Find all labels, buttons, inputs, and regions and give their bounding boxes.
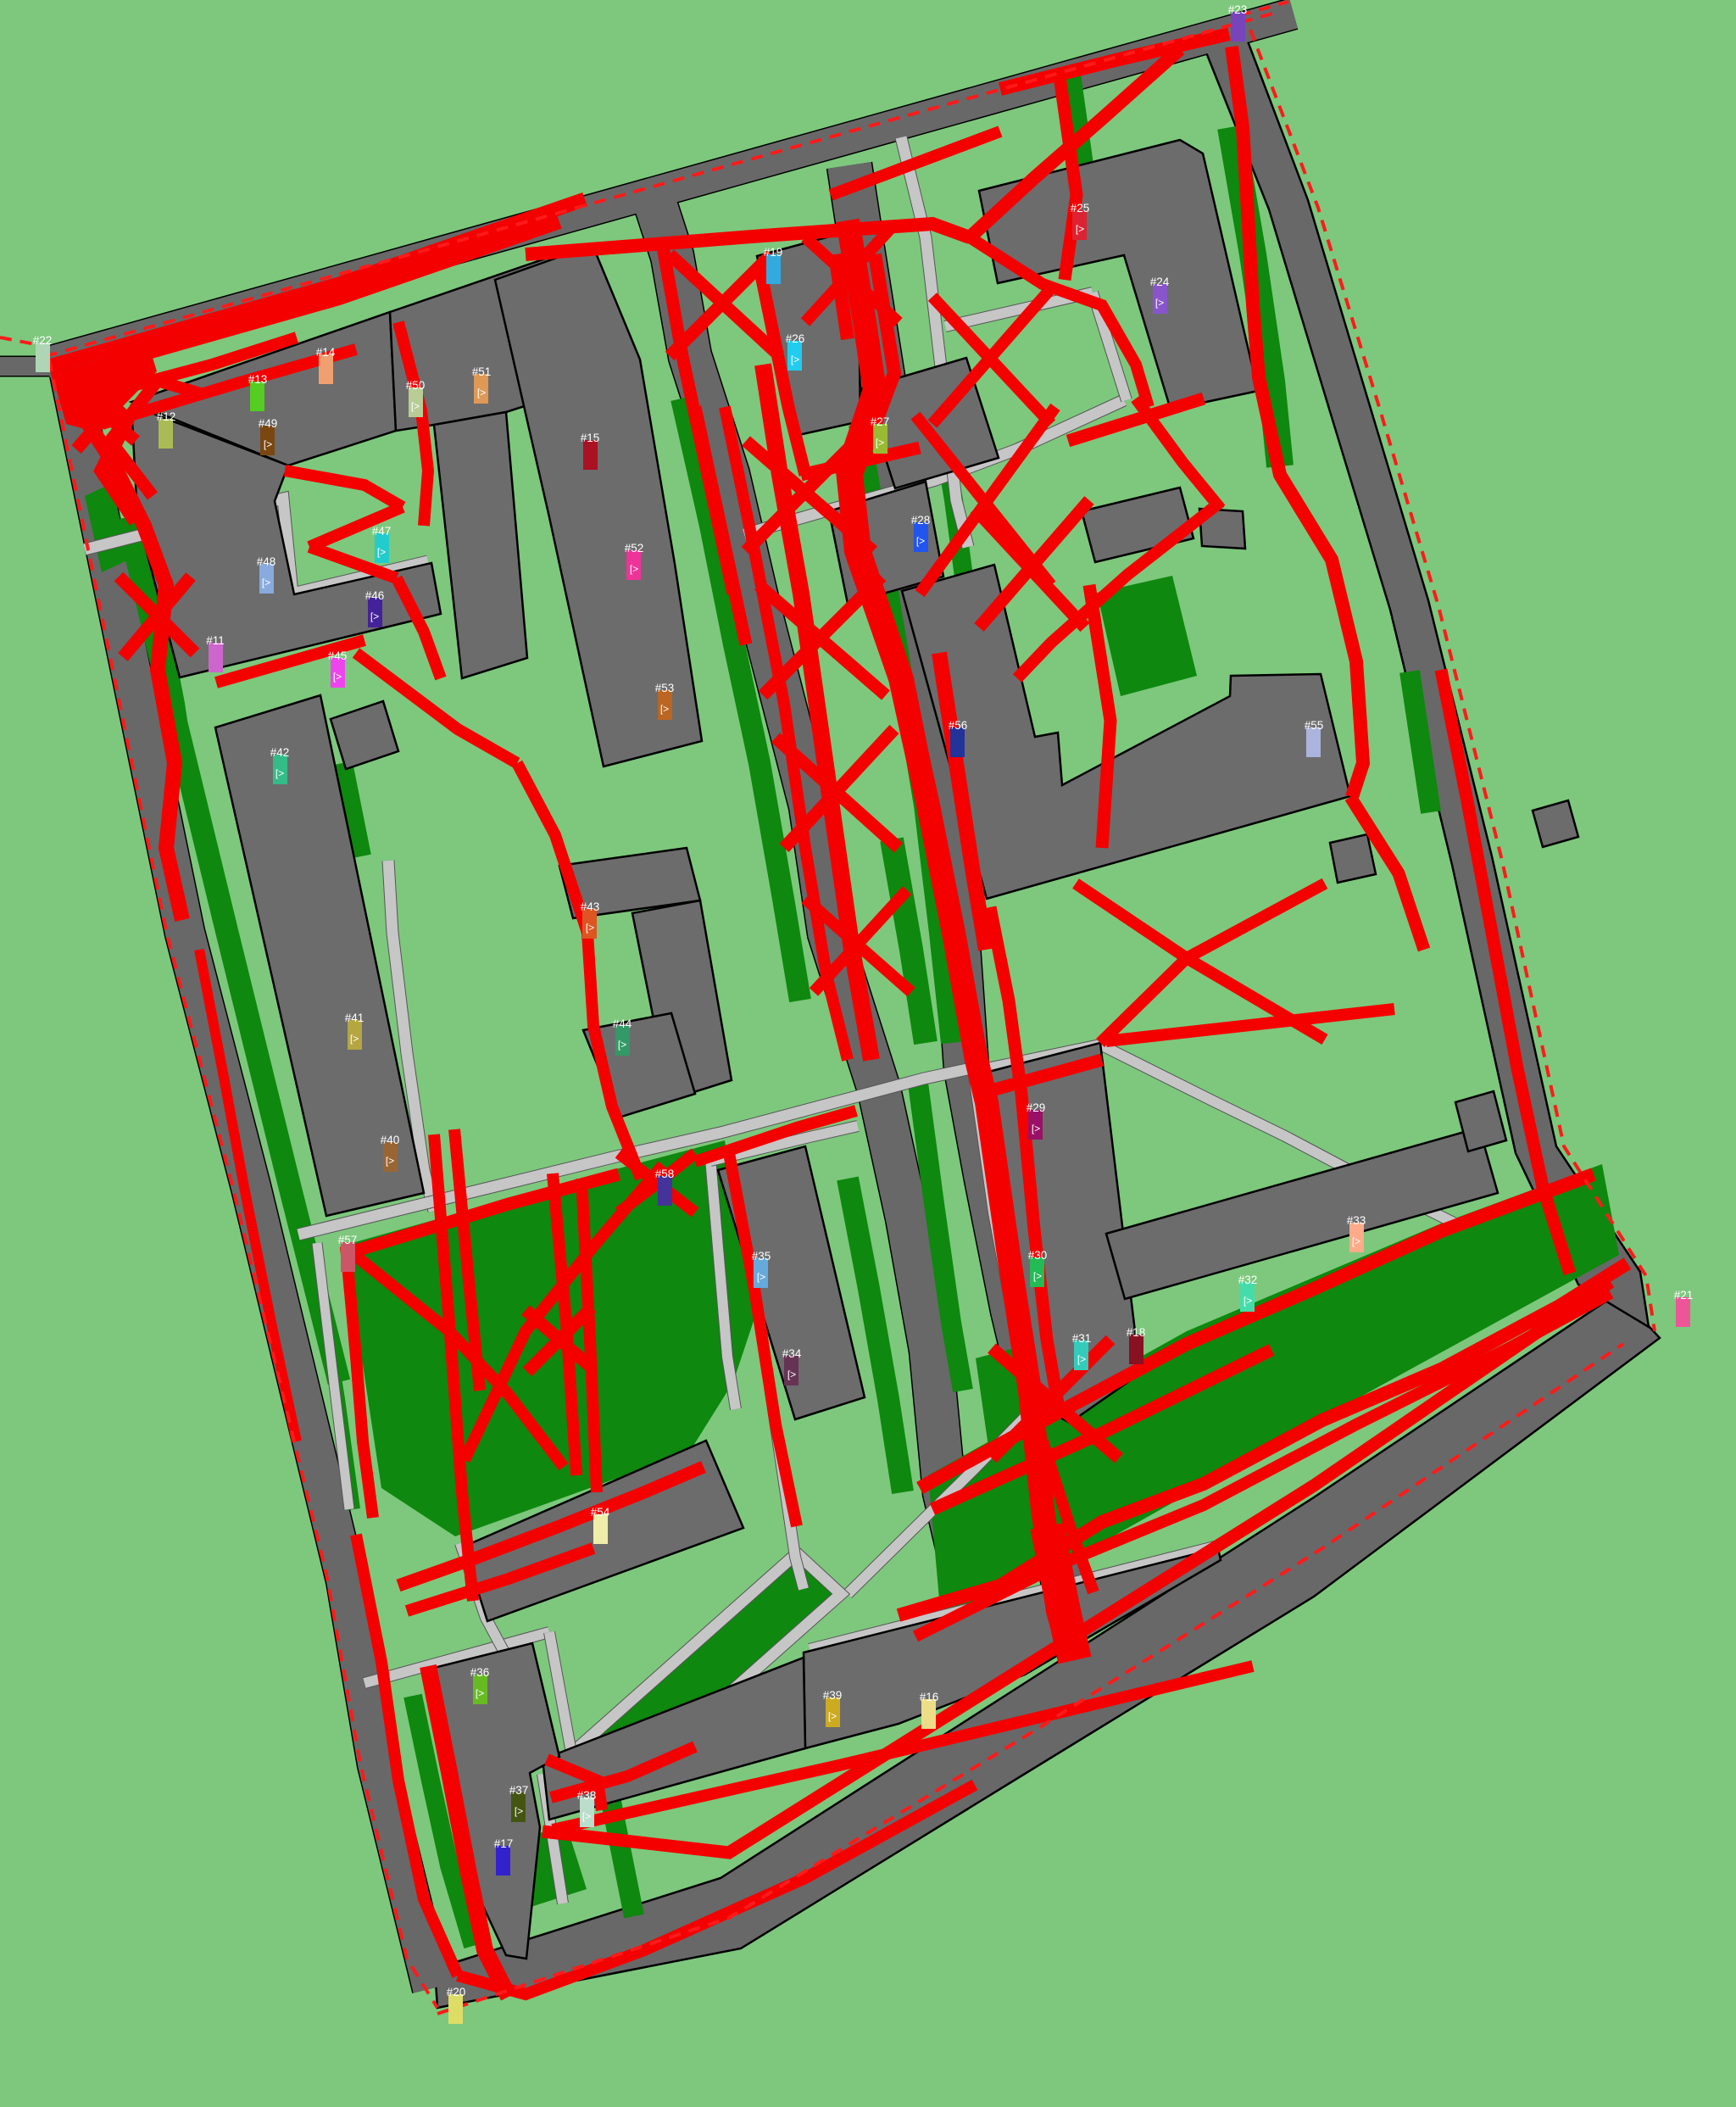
svg-text:[>: [> [477,387,486,399]
svg-text:#53: #53 [655,682,675,694]
svg-text:#11: #11 [206,634,225,647]
svg-text:#28: #28 [911,514,931,527]
svg-text:#21: #21 [1674,1289,1694,1302]
svg-text:[>: [> [630,563,638,575]
svg-text:[>: [> [333,671,342,683]
svg-text:[>: [> [350,1033,359,1045]
svg-text:#17: #17 [494,1837,514,1850]
svg-text:#20: #20 [447,1986,466,1998]
svg-text:#19: #19 [764,246,783,259]
svg-text:[>: [> [828,1710,837,1722]
svg-text:#54: #54 [591,1506,610,1519]
svg-text:#15: #15 [581,432,600,444]
svg-text:#32: #32 [1238,1274,1258,1286]
svg-text:#43: #43 [581,900,600,913]
svg-text:#46: #46 [365,589,385,602]
svg-text:#49: #49 [259,417,278,430]
svg-text:#25: #25 [1071,202,1090,215]
svg-text:#30: #30 [1028,1249,1048,1262]
svg-text:#39: #39 [823,1689,843,1702]
svg-text:[>: [> [876,437,884,449]
svg-text:#31: #31 [1072,1332,1092,1345]
svg-text:#42: #42 [270,746,290,759]
svg-text:#22: #22 [33,334,53,347]
svg-text:#37: #37 [509,1784,529,1797]
svg-text:#13: #13 [248,373,268,386]
svg-text:#47: #47 [372,525,392,538]
svg-text:[>: [> [264,438,272,450]
svg-text:[>: [> [787,1368,796,1380]
svg-text:#50: #50 [406,379,426,392]
svg-text:[>: [> [262,577,270,588]
svg-text:#38: #38 [577,1789,597,1802]
svg-text:[>: [> [275,767,284,779]
svg-text:[>: [> [1033,1270,1042,1282]
svg-text:#23: #23 [1228,3,1248,16]
svg-text:#33: #33 [1347,1214,1366,1227]
svg-text:[>: [> [377,546,386,558]
svg-text:[>: [> [1244,1295,1252,1307]
svg-text:#51: #51 [472,365,492,378]
svg-text:[>: [> [791,354,799,365]
svg-text:[>: [> [515,1805,523,1817]
svg-text:#48: #48 [257,555,276,568]
svg-text:#27: #27 [871,415,890,428]
svg-text:#58: #58 [655,1168,675,1180]
svg-text:#45: #45 [328,649,348,662]
svg-text:[>: [> [582,1810,591,1822]
svg-text:[>: [> [1352,1235,1360,1247]
svg-text:#16: #16 [920,1691,939,1703]
svg-text:#41: #41 [345,1012,364,1024]
svg-text:[>: [> [1155,297,1164,309]
svg-text:[>: [> [1032,1123,1040,1134]
svg-text:#36: #36 [470,1666,490,1679]
svg-text:#12: #12 [157,410,176,423]
svg-text:#55: #55 [1305,719,1324,732]
svg-text:[>: [> [586,922,594,934]
svg-text:[>: [> [1077,1353,1086,1365]
svg-text:#44: #44 [613,1017,632,1030]
svg-text:#40: #40 [381,1134,400,1146]
svg-text:#26: #26 [786,332,805,345]
svg-text:#52: #52 [625,542,644,555]
svg-text:#18: #18 [1127,1326,1146,1339]
svg-text:#56: #56 [949,719,968,732]
svg-text:[>: [> [386,1155,394,1167]
svg-text:#35: #35 [752,1250,771,1263]
svg-text:[>: [> [411,400,420,412]
svg-text:[>: [> [660,703,669,715]
svg-text:#34: #34 [782,1347,802,1360]
svg-text:[>: [> [916,535,925,547]
svg-text:#24: #24 [1150,276,1170,288]
svg-text:[>: [> [370,610,379,622]
svg-text:[>: [> [1076,223,1084,235]
svg-text:[>: [> [476,1687,484,1699]
svg-text:#57: #57 [338,1234,358,1246]
svg-text:#29: #29 [1027,1101,1046,1114]
svg-text:[>: [> [757,1271,765,1283]
svg-text:#14: #14 [316,346,336,359]
svg-text:[>: [> [618,1039,626,1051]
